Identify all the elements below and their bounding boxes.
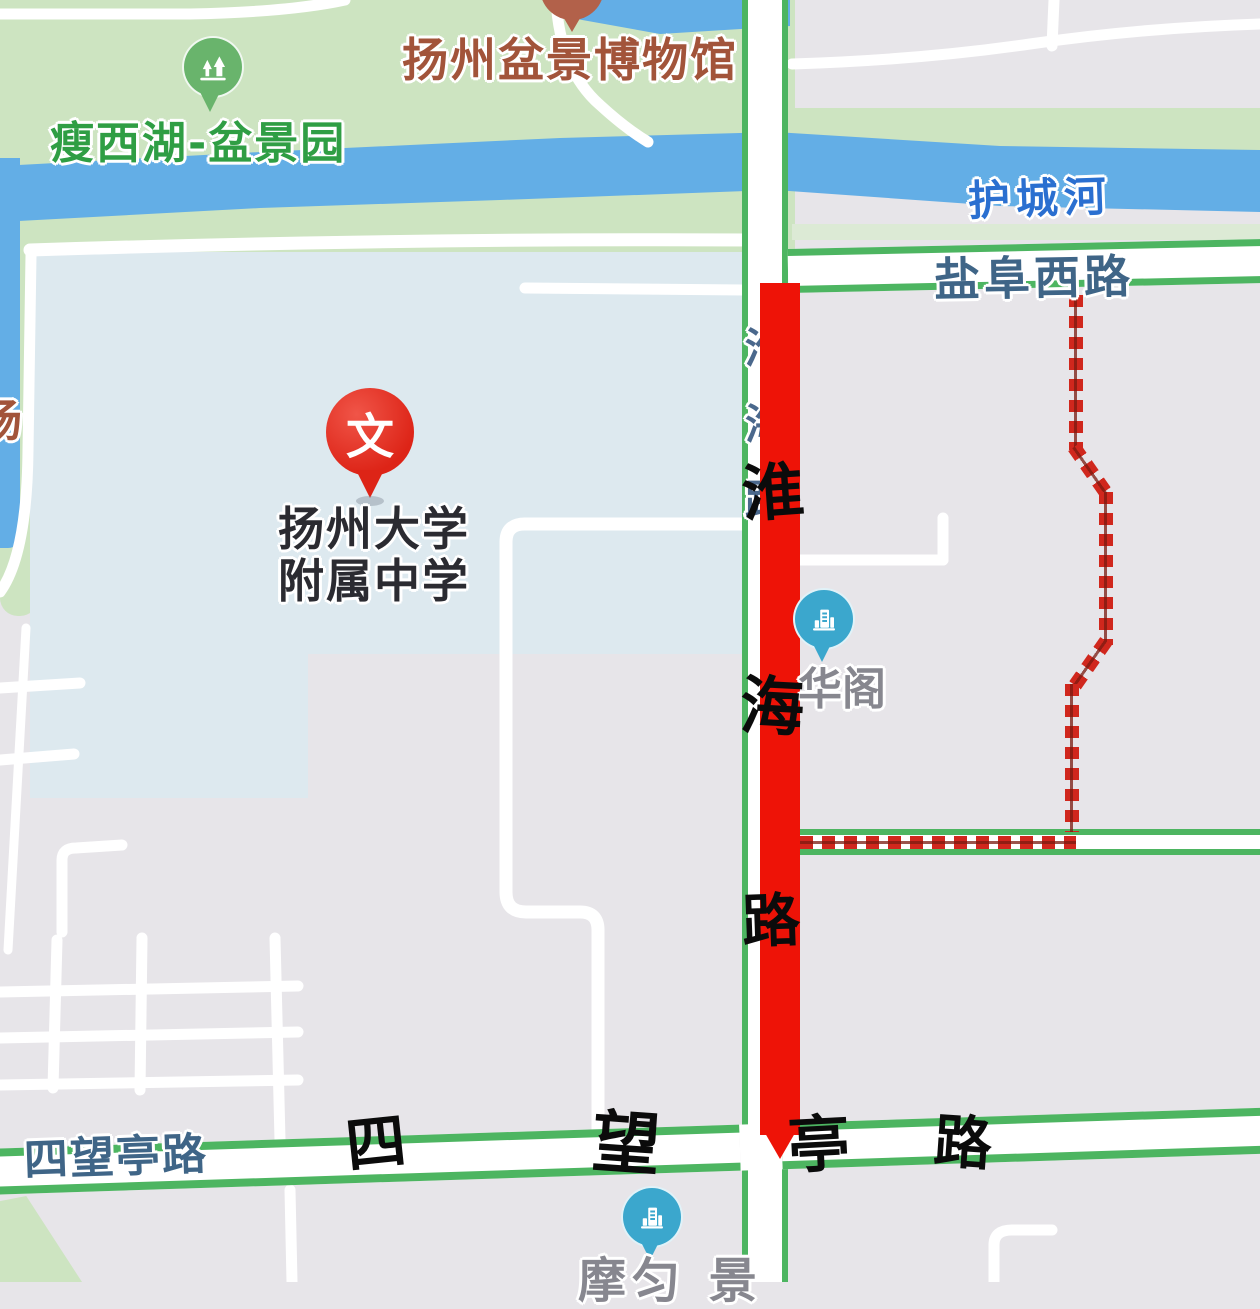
building-icon (637, 1202, 667, 1232)
dashed-route-seg-2 (1099, 492, 1113, 645)
moat-river-label: 护城河 (967, 174, 1113, 224)
calligraphy-huaihai-char-2: 海 (738, 674, 805, 741)
calligraphy-huaihai-char-3: 路 (741, 891, 801, 951)
road-label-siwangting: 四望亭路 (23, 1131, 209, 1185)
park-marker[interactable] (182, 36, 244, 98)
huage-marker-tail (811, 640, 833, 662)
park-label[interactable]: 瘦西湖-盆景园 (50, 120, 346, 168)
museum-marker-tail (558, 8, 586, 32)
left-edge-partial-label: 场 (0, 398, 22, 446)
calligraphy-siwangting-char-1: 四 (343, 1111, 409, 1177)
school-marker-tail (356, 470, 384, 498)
wen-pin-icon: 文 (346, 397, 394, 467)
park-marker-tail (199, 90, 221, 112)
trees-icon (196, 50, 230, 84)
map-canvas[interactable]: { "poi": { "park": {"label": "瘦西湖-盆景园"},… (0, 0, 1260, 1282)
calligraphy-siwangting-char-4: 路 (932, 1112, 994, 1174)
road-label-yanfu: 盐阜西路 (934, 252, 1135, 305)
dashed-route-horizontal (800, 836, 1076, 849)
dashed-route-seg-1 (1069, 295, 1083, 450)
calligraphy-siwangting-char-2: 望 (590, 1108, 663, 1181)
school-marker[interactable]: 文 (326, 388, 414, 476)
school-label-line1[interactable]: 扬州大学 (278, 505, 470, 555)
dashed-route-seg-3 (1065, 684, 1079, 832)
school-label-line2[interactable]: 附属中学 (278, 557, 470, 607)
calligraphy-siwangting-char-3: 亭 (786, 1112, 851, 1177)
museum-label[interactable]: 扬州盆景博物馆 (402, 36, 738, 86)
huage-label[interactable]: 华阁 (798, 666, 886, 714)
building-icon (809, 604, 839, 634)
calligraphy-huaihai-char-1: 淮 (740, 460, 806, 526)
